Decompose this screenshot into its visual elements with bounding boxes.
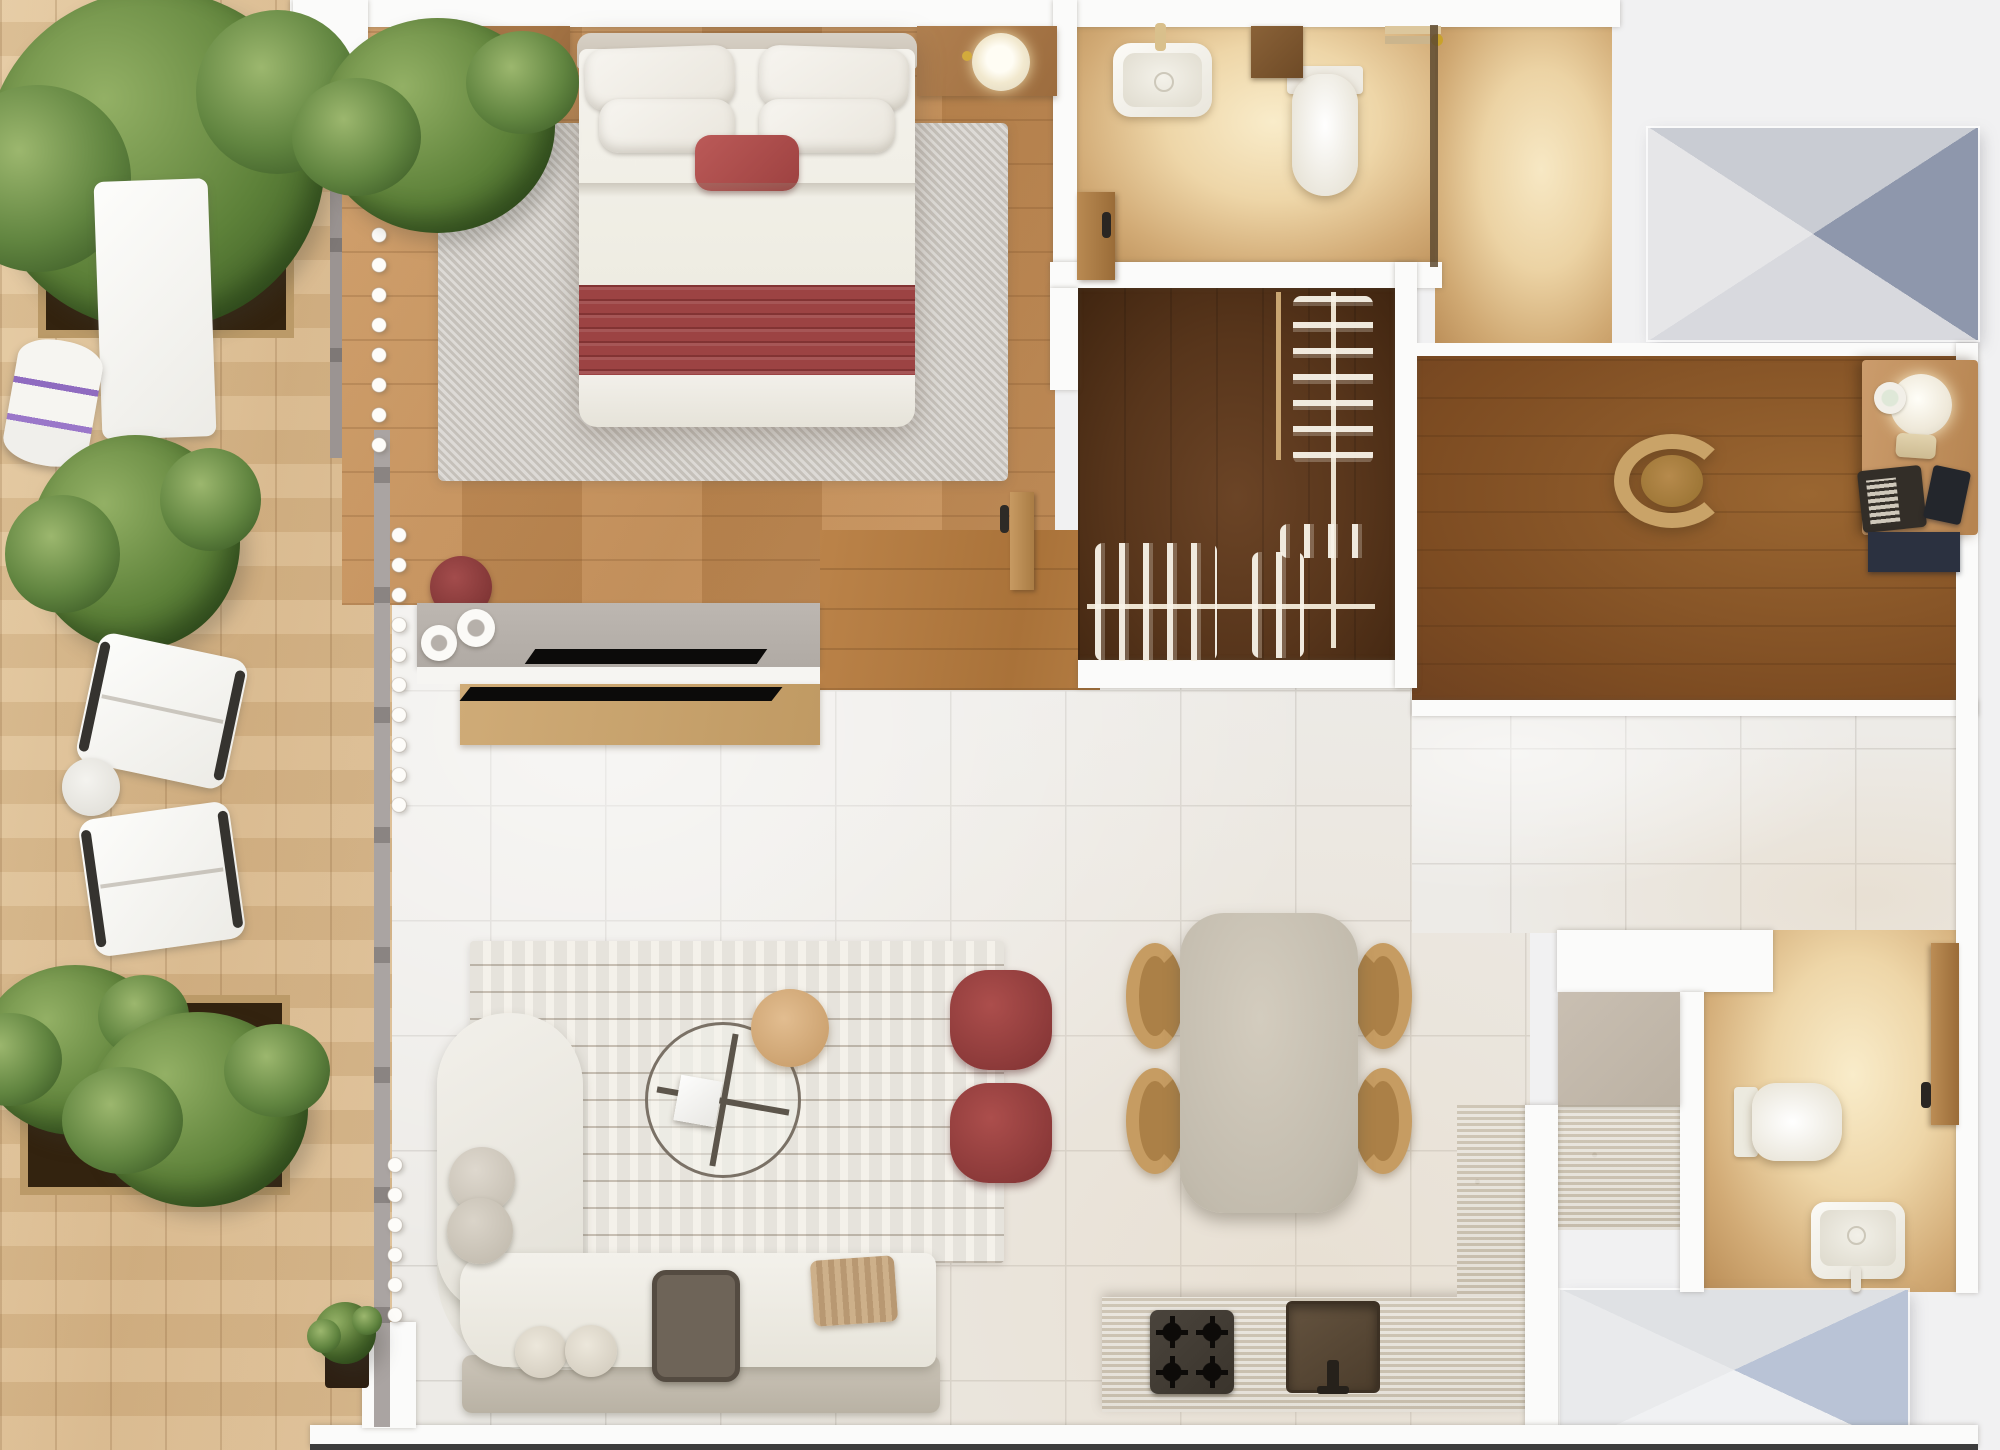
ensuite-door-handle [1102,212,1111,238]
wall-kitchen-right [1525,1105,1558,1427]
duvet-fold [579,183,915,197]
curtain-living-2 [386,1150,416,1335]
guest-faucet [1851,1266,1861,1292]
dining-chair-tr [1354,943,1412,1049]
wall-top [290,0,1620,27]
double-bed [577,33,917,427]
guest-sink [1811,1202,1905,1279]
smartphone [1895,433,1937,460]
rolled-towel-1 [421,625,457,661]
guest-door-leaf [1931,943,1959,1125]
foot-blanket [579,375,915,427]
guest-door-handle [1921,1082,1931,1108]
dining-table [1180,913,1358,1213]
gold-dot [962,51,972,61]
travertine-column [1457,1105,1525,1297]
toss-pillow-2 [565,1325,617,1377]
trinket-plate [1874,382,1906,414]
vanity-sink [1113,43,1212,117]
laptop-keyboard [1866,477,1900,524]
task-chair [1614,434,1730,528]
window-frame-upper [330,180,342,458]
sideboard-edge [417,667,820,684]
knit-throw [810,1255,898,1327]
hedge-mid [30,435,240,650]
hanger-cluster-right [1252,552,1304,658]
potted-plant-small [314,1302,376,1364]
sofa-tray-table [652,1270,740,1382]
white-book [673,1075,722,1128]
tv-screen-living-side [460,687,783,701]
kitchen-sink [1286,1301,1380,1393]
dining-chair-tl [1126,943,1184,1049]
floor-plan-stage [0,0,2000,1450]
wall-closet-left [1050,288,1078,390]
burner-2 [1196,1316,1228,1348]
round-side-table [62,758,120,816]
guest-toilet-bowl [1752,1083,1842,1161]
maroon-pouf-1 [950,970,1052,1070]
sink-drain [1154,72,1174,92]
lounge-chair-2 [77,800,247,958]
tall-greige-cabinet [1558,992,1680,1105]
navy-drawer-unit [1868,532,1960,572]
curtain-living-1 [390,520,420,815]
shower-area-floor [1435,25,1612,347]
wall-office-top [1412,343,1978,356]
building-edge-bottom [310,1444,1978,1450]
hanger-cluster-left [1095,543,1217,661]
wall-guestbath-left [1680,992,1704,1292]
corridor-floor [820,530,1100,690]
bedroom-door-leaf [1010,492,1034,590]
red-pleated-throw [579,285,915,377]
wood-disc-table [751,989,829,1067]
bedroom-door-handle [1000,505,1009,533]
dining-chair-br [1354,1068,1412,1174]
chair-seat [1641,455,1703,507]
tv-sideboard [417,603,820,745]
skylight-panel-top-right [1648,128,1978,340]
closet-rail-support [1276,292,1281,460]
chaise-cushion-2 [447,1198,513,1264]
hedge-bottom-right [88,1012,308,1207]
toilet-bowl [1292,74,1358,196]
wall-closet-right [1395,262,1417,688]
round-table-lamp [972,33,1030,91]
travertine-block [1558,1105,1680,1230]
toss-pillow-1 [515,1326,567,1378]
tv-screen-bedroom-side [525,649,768,664]
burner-1 [1156,1316,1188,1348]
hallway-tile-floor [1412,703,1978,933]
burner-4 [1196,1356,1228,1388]
ensuite-toilet [1287,66,1363,198]
wall-hall [1557,930,1773,992]
wall-closet-bottom [1078,660,1417,688]
gas-cooktop [1150,1310,1234,1394]
ensuite-faucet [1155,23,1166,51]
wall-office-bottom [1412,700,1978,716]
hanger-cluster-top [1293,296,1373,464]
faucet-handle [1317,1386,1349,1394]
nightstand-right [917,26,1057,96]
hedge-top-right [320,18,555,233]
rolled-towel-2 [457,609,495,647]
glass-partition [1430,25,1438,267]
burner-3 [1156,1356,1188,1388]
guest-sink-drain [1847,1226,1866,1245]
dining-chair-bl [1126,1068,1184,1174]
guest-toilet [1734,1083,1842,1161]
maroon-pouf-2 [950,1083,1052,1183]
lounge-mat [94,178,217,440]
bath-cabinet [1251,26,1303,78]
laptop [1857,465,1927,533]
